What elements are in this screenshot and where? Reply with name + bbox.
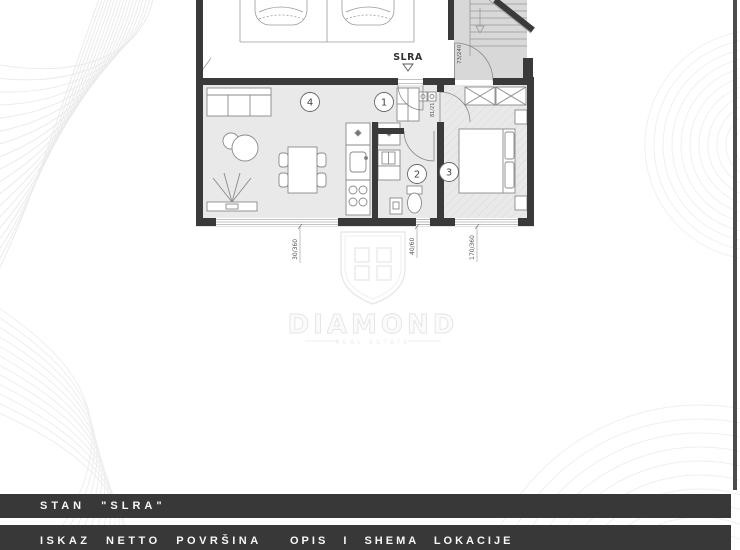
stair-dimension: 73/240	[457, 44, 463, 64]
tab-iskaz-netto-povrsina: ISKAZ NETTO POVRŠINA	[40, 535, 262, 547]
dimension-marks	[196, 224, 534, 263]
living-room-window	[216, 218, 338, 226]
footer-bar-secondary: ISKAZ NETTO POVRŠINA OPIS I SHEMA LOKACI…	[0, 525, 731, 550]
nightstand	[515, 110, 527, 124]
bedroom-window	[455, 218, 518, 226]
entry-threshold	[398, 80, 423, 84]
room-3-number: 3	[446, 168, 452, 179]
car-icon	[255, 0, 307, 25]
tab-opis-i-shema-lokacije: OPIS I SHEMA LOKACIJE	[290, 535, 513, 547]
dim-bedroom-door: 81/21	[430, 103, 436, 117]
room-4-number: 4	[307, 98, 313, 109]
bed	[459, 129, 515, 193]
car-icon	[342, 0, 394, 25]
footer-bar-primary: STAN "SLRA"	[0, 494, 731, 518]
entry-label: SLRA	[393, 52, 423, 63]
watermark-tagline: REAL ESTATE	[335, 338, 410, 346]
floor-plan: 73/240	[193, 0, 545, 268]
sink	[350, 152, 366, 172]
sofa	[207, 88, 271, 116]
dim-living-window: 30/360	[292, 239, 299, 260]
image-edge-strip	[733, 0, 737, 490]
listing-image: DIAMOND REAL ESTATE	[0, 0, 740, 550]
dim-bedroom-window: 170/360	[469, 235, 476, 260]
entry-arrow-icon	[403, 64, 413, 71]
nightstand	[515, 196, 527, 210]
parking-area	[198, 0, 414, 76]
unit-title: STAN "SLRA"	[40, 494, 166, 518]
toilet	[407, 186, 422, 213]
watermark-brand: DIAMOND	[288, 310, 459, 340]
closet	[397, 88, 419, 121]
room-1-number: 1	[381, 98, 387, 109]
room-2-number: 2	[414, 170, 420, 181]
kitchen-counter	[346, 123, 370, 215]
dim-small-window: 40/60	[409, 238, 416, 255]
